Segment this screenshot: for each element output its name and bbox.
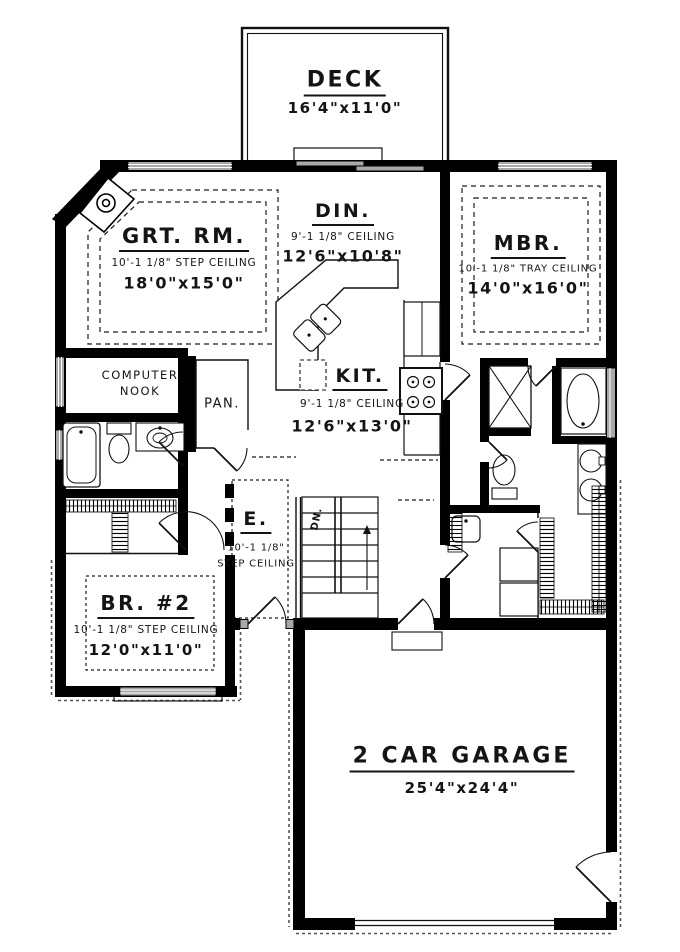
bedroom2-window	[114, 687, 222, 701]
front-door	[248, 597, 286, 624]
master-suite-door	[445, 364, 470, 400]
garage-label: 2 CAR GARAGE	[350, 744, 575, 773]
great-room-dims: 18'0"x15'0"	[123, 274, 244, 293]
garage-service-door	[576, 852, 618, 902]
range-cooktop	[400, 368, 442, 414]
bedroom2-door	[159, 512, 224, 550]
laundry-fixtures	[452, 516, 538, 616]
dining-label: DIN.	[312, 200, 374, 226]
dishwasher	[300, 360, 326, 390]
deck-dims: 16'4"x11'0"	[288, 99, 403, 117]
great-room-ceiling: 10'-1 1/8" STEP CEILING	[112, 257, 257, 269]
kitchen-ceiling: 9'-1 1/8" CEILING	[300, 398, 404, 410]
floor-plan: DECK 16'4"x11'0" GRT. RM. 10'-1 1/8" STE…	[0, 0, 680, 952]
master-bedroom-label: MBR.	[491, 231, 566, 259]
computer-nook-label-line2: NOOK	[120, 384, 160, 398]
floorplan-drawing	[0, 0, 680, 952]
computer-nook-label-line1: COMPUTER	[102, 368, 179, 382]
great-room-label: GRT. RM.	[119, 224, 249, 252]
kitchen-dims: 12'6"x13'0"	[291, 417, 412, 436]
deck-label: DECK	[304, 68, 386, 97]
washer	[500, 548, 538, 581]
bedroom2-label: BR. #2	[97, 591, 194, 619]
hall-bath-fixtures	[63, 423, 184, 487]
entry-ceiling-line2: STEP CEILING	[217, 559, 295, 570]
master-tub	[561, 368, 606, 434]
dining-dims: 12'6"x10'8"	[282, 247, 403, 266]
deck-outline	[242, 28, 448, 168]
master-bedroom-ceiling: 10'-1 1/8" TRAY CEILING	[459, 264, 598, 275]
master-bath-window	[607, 368, 616, 438]
master-toilet	[492, 455, 517, 499]
dryer	[500, 583, 538, 616]
dining-ceiling: 9'-1 1/8" CEILING	[291, 231, 395, 243]
pantry-door	[214, 448, 247, 471]
nook-window	[56, 357, 65, 407]
floorplan-page: { "colors": { "ink": "#000000", "paper":…	[0, 0, 680, 952]
vanity-sink	[136, 423, 184, 451]
master-bedroom-dims: 14'0"x16'0"	[467, 279, 588, 298]
pantry-label: PAN.	[204, 397, 240, 412]
stairs	[296, 497, 378, 618]
entry-label: E.	[240, 508, 271, 534]
master-bath-door	[528, 366, 556, 386]
toilet	[107, 423, 131, 463]
bedroom2-dims: 12'0"x11'0"	[89, 641, 204, 659]
entry-ceiling-line1: 10'-1 1/8"	[227, 543, 284, 554]
kitchen-label: KIT.	[332, 365, 387, 391]
shower	[489, 366, 531, 428]
great-room-window	[128, 162, 232, 171]
master-bedroom-window	[498, 162, 592, 171]
garage-door	[355, 921, 554, 926]
garage-dims: 25'4"x24'4"	[405, 779, 520, 797]
bedroom2-ceiling: 10'-1 1/8" STEP CEILING	[74, 624, 219, 636]
